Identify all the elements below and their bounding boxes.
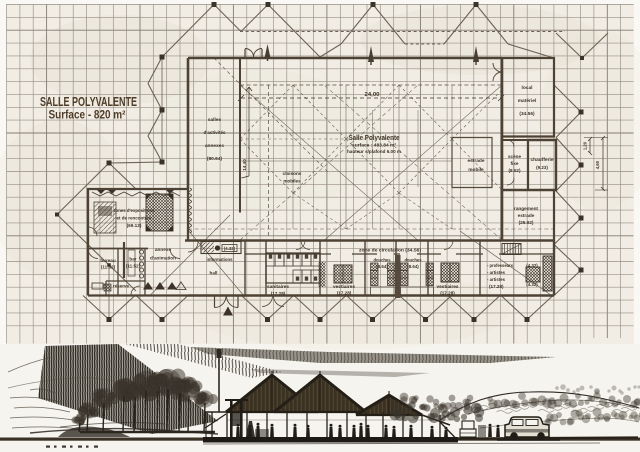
svg-text:salles: salles (208, 117, 222, 123)
svg-text:matériel: matériel (518, 98, 536, 104)
svg-text:hauteur s/plafond 6.00 m: hauteur s/plafond 6.00 m (347, 149, 401, 154)
svg-text:local: local (522, 85, 533, 91)
svg-text:14,40: 14,40 (242, 159, 247, 171)
svg-text:(17.28): (17.28) (337, 291, 352, 296)
svg-text:douches: douches (374, 258, 392, 263)
svg-text:d'activités: d'activités (204, 130, 226, 136)
svg-text:mobiles: mobiles (283, 179, 301, 184)
svg-text:(80.64): (80.64) (207, 156, 223, 162)
svg-text:(11.52): (11.52) (126, 264, 141, 269)
svg-text:(11.52): (11.52) (101, 265, 116, 270)
svg-text:(17.28): (17.28) (271, 291, 286, 296)
svg-text:(34.56): (34.56) (519, 111, 535, 117)
svg-text:Surface - 820 m²: Surface - 820 m² (49, 109, 126, 122)
svg-text:1,20: 1,20 (583, 141, 588, 150)
svg-text:chaufferie: chaufferie (531, 157, 555, 162)
svg-text:et de rencontres: et de rencontres (117, 216, 152, 221)
svg-text:(8.64): (8.64) (376, 264, 388, 269)
svg-text:vestiaires: vestiaires (437, 284, 459, 289)
svg-text:(4.32): (4.32) (224, 246, 236, 251)
svg-text:hall: hall (210, 271, 218, 276)
svg-text:- artistes: - artistes (487, 270, 505, 275)
svg-text:zones d'expositions: zones d'expositions (114, 208, 155, 213)
svg-text:annexe: annexe (155, 247, 172, 252)
svg-text:bar: bar (129, 257, 136, 262)
svg-text:estrade: estrade (518, 213, 535, 218)
svg-text:mobile: mobile (468, 167, 484, 173)
svg-text:SALLE POLYVALENTE: SALLE POLYVALENTE (40, 94, 137, 109)
svg-text:(8.52): (8.52) (508, 168, 520, 173)
svg-text:(8.64): (8.64) (407, 264, 419, 269)
svg-text:24,00: 24,00 (365, 92, 380, 98)
svg-text:vestiaires: vestiaires (333, 284, 355, 289)
svg-text:bureau: bureau (100, 258, 116, 263)
svg-text:surface : 483.84 m²: surface : 483.84 m² (352, 143, 396, 148)
svg-text:(4.32): (4.32) (526, 282, 538, 287)
svg-text:- professeurs: - professeurs (487, 263, 513, 268)
svg-text:estrade: estrade (467, 158, 484, 164)
svg-text:(17.28): (17.28) (489, 284, 504, 289)
svg-text:fixe: fixe (511, 161, 519, 166)
svg-text:cloisons: cloisons (283, 171, 302, 176)
svg-text:douches: douches (405, 258, 423, 263)
svg-text:- artistes: - artistes (487, 277, 505, 282)
svg-text:zone de circulation (34.56): zone de circulation (34.56) (359, 248, 421, 253)
svg-text:d'animation: d'animation (150, 256, 176, 261)
svg-text:(69.12): (69.12) (127, 223, 142, 228)
svg-text:(17.28): (17.28) (440, 291, 455, 296)
svg-text:informations: informations (207, 257, 233, 262)
svg-text:Salle Polyvalente: Salle Polyvalente (349, 133, 400, 142)
svg-text:(4.32): (4.32) (526, 263, 538, 268)
svg-text:rangement: rangement (514, 206, 538, 211)
svg-text:annexes: annexes (205, 144, 225, 149)
svg-text:(9.23): (9.23) (536, 165, 548, 170)
svg-text:(25.92): (25.92) (519, 220, 534, 225)
svg-text:4,60: 4,60 (595, 160, 600, 169)
svg-text:réserve: réserve (113, 284, 129, 289)
svg-text:scène: scène (508, 154, 521, 159)
svg-text:sanitaires: sanitaires (267, 284, 289, 289)
